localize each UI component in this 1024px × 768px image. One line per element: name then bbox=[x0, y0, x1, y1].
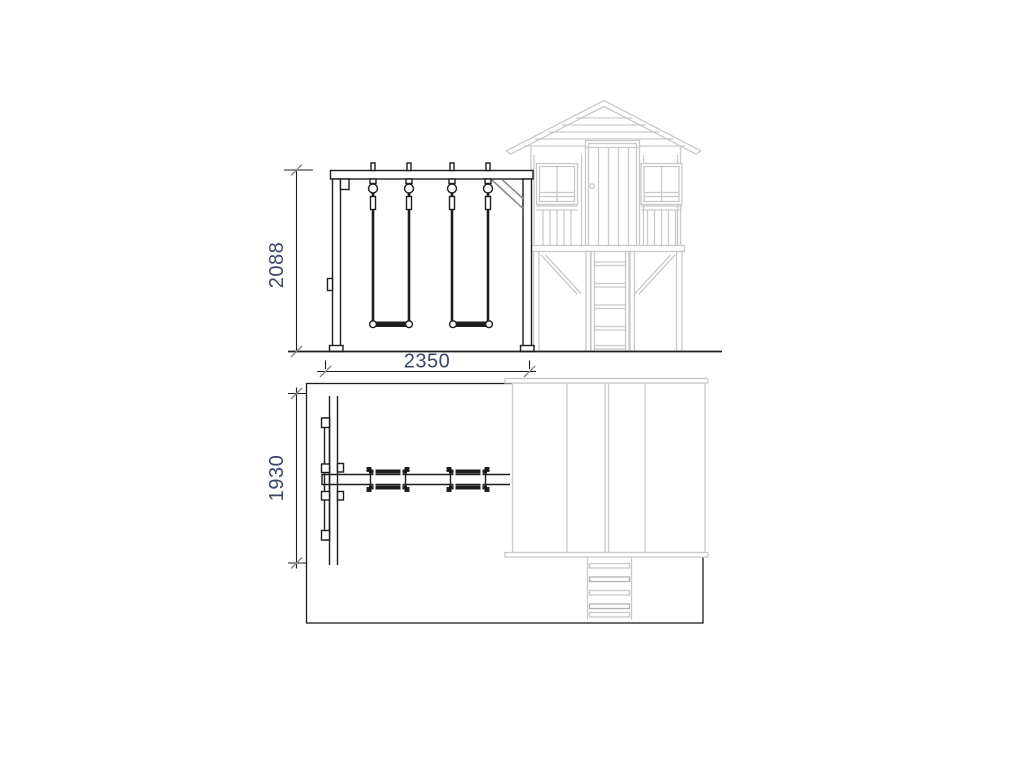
window-left bbox=[537, 164, 578, 205]
seat-ring bbox=[370, 321, 377, 328]
beam-bracket bbox=[341, 179, 350, 190]
diagonal-brace bbox=[503, 180, 524, 199]
seat-ring bbox=[450, 321, 457, 328]
swing-2 bbox=[450, 193, 493, 328]
width-dimension-label: 2350 bbox=[404, 351, 451, 373]
playhouse-roof-plan bbox=[505, 379, 708, 558]
connector-plan bbox=[322, 464, 330, 473]
depth-dimension-label: 1930 bbox=[266, 455, 288, 502]
connector-plan bbox=[322, 418, 330, 428]
floor-band bbox=[527, 246, 685, 252]
playhouse-front-view bbox=[506, 101, 701, 352]
connector-plan bbox=[322, 492, 330, 501]
height-dimension-label: 2088 bbox=[266, 242, 288, 289]
drawing-canvas: 2088 2350 bbox=[0, 0, 1024, 768]
height-dimension: 2088 bbox=[266, 165, 313, 358]
rope-adjuster bbox=[407, 197, 412, 210]
ladder-front bbox=[591, 252, 629, 352]
connector-plan bbox=[338, 464, 344, 473]
seat-ring bbox=[486, 321, 493, 328]
swing-1 bbox=[370, 193, 413, 328]
front-elevation-view: 2088 2350 bbox=[266, 101, 722, 378]
stilts bbox=[534, 252, 683, 352]
connector-plan bbox=[322, 531, 330, 541]
left-post-footing bbox=[330, 346, 344, 352]
balustrade-right bbox=[641, 206, 682, 246]
balustrade-left bbox=[537, 206, 578, 246]
seat-ring bbox=[406, 321, 413, 328]
plan-view: 1930 bbox=[266, 379, 708, 624]
rope-adjuster bbox=[371, 197, 376, 210]
left-post bbox=[333, 179, 341, 346]
rope-adjuster bbox=[450, 197, 455, 210]
top-beam bbox=[331, 171, 534, 180]
post-connector bbox=[328, 279, 333, 291]
width-dimension: 2350 bbox=[317, 351, 536, 378]
window-right bbox=[641, 164, 682, 205]
connector-plan bbox=[338, 492, 344, 501]
right-post bbox=[523, 179, 532, 346]
door bbox=[586, 141, 640, 251]
depth-dimension: 1930 bbox=[266, 388, 307, 569]
right-post-footing bbox=[521, 346, 535, 352]
technical-drawing: 2088 2350 bbox=[0, 0, 1024, 768]
swing-frame bbox=[328, 163, 535, 352]
rope-adjuster bbox=[486, 197, 491, 210]
